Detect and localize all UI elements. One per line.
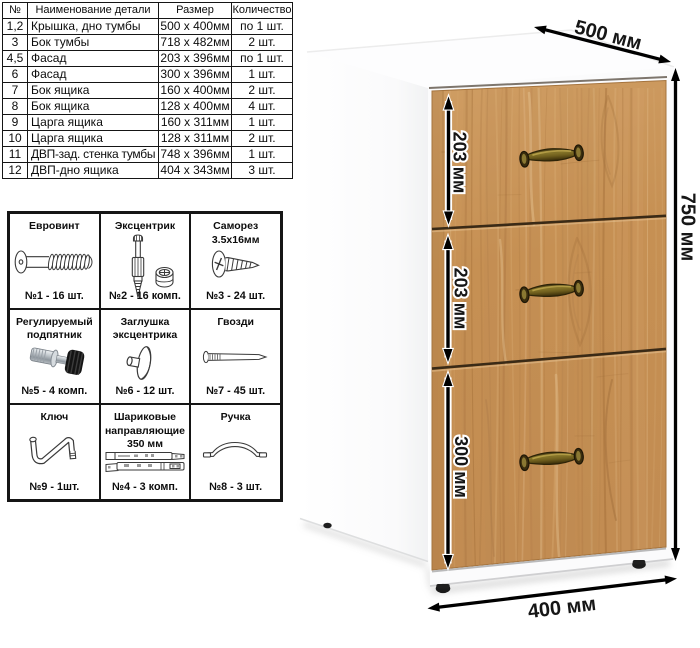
svg-text:750 мм: 750 мм (677, 193, 699, 262)
svg-text:300 мм: 300 мм (451, 436, 471, 498)
svg-text:203 мм: 203 мм (450, 132, 470, 194)
svg-text:203 мм: 203 мм (451, 268, 471, 330)
svg-text:400 мм: 400 мм (527, 593, 598, 623)
